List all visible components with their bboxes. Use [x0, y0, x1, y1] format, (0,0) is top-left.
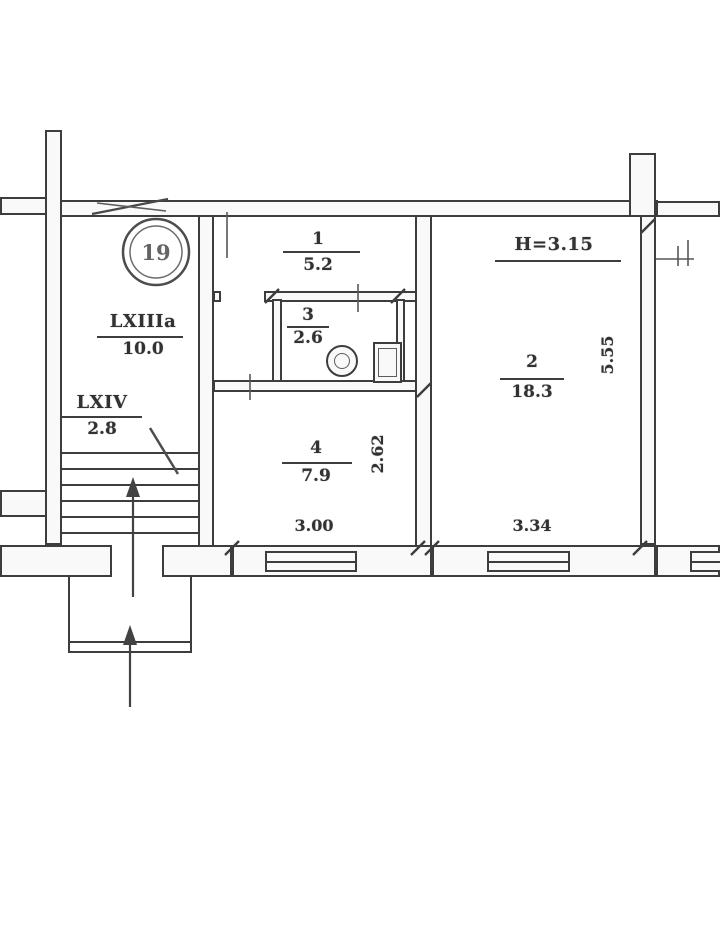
kitchen-number: 4 [280, 438, 352, 458]
height-note-underline [495, 260, 621, 262]
stamp-inner-circle [130, 226, 182, 278]
bathroom-area: 2.6 [284, 329, 332, 347]
stamp-outer-circle [123, 219, 189, 285]
livingroom-area: 18.3 [500, 382, 564, 402]
livingroom-label-bar [500, 378, 564, 380]
hallway-label-bar [283, 251, 360, 253]
hallway-area: 5.2 [288, 255, 348, 275]
wall-hallway-south-b [264, 291, 417, 302]
stair-tread [62, 484, 199, 486]
wall-top-left-stub [0, 197, 47, 215]
wall-top-right-extension [656, 201, 720, 217]
bathroom-number: 3 [284, 306, 332, 324]
dimension-livingroom-depth: 5.55 [597, 325, 619, 385]
sink-basin-icon [378, 348, 397, 377]
livingroom-number: 2 [500, 352, 564, 372]
kitchen-area: 7.9 [280, 466, 352, 486]
wall-left-outer [45, 130, 62, 545]
window-glass-line [692, 561, 720, 563]
window-neighbor-partial [690, 551, 720, 572]
dimension-livingroom-width: 3.34 [490, 515, 574, 537]
wall-stairwell-divider [198, 215, 214, 560]
stairwell-number: LXIIIa [86, 311, 200, 332]
landing-label-bar [62, 416, 142, 418]
stair-arrow-head-icon [126, 477, 140, 497]
floor-plan-canvas: 1 5.2 3 2.6 4 7.9 2 18.3 LXIIIa 10.0 LXI… [0, 0, 720, 940]
floor-plan: 1 5.2 3 2.6 4 7.9 2 18.3 LXIIIa 10.0 LXI… [0, 0, 720, 940]
window-kitchen [265, 551, 357, 572]
wall-top-right-pier [629, 153, 656, 217]
dimension-kitchen-width: 3.00 [272, 515, 356, 537]
wall-hallway-south-a [213, 291, 221, 302]
wall-bottom-b [162, 545, 232, 577]
wall-bathroom-west [272, 299, 282, 389]
dimension-kitchen-depth: 2.62 [368, 424, 388, 484]
stairwell-area: 10.0 [86, 339, 200, 359]
wall-left-lower-stub [0, 490, 47, 517]
window-glass-line [489, 561, 568, 563]
stamp-number: 19 [141, 240, 170, 265]
wall-top-main [60, 200, 658, 217]
wall-livingroom-east [640, 215, 656, 545]
stairwell-label-bar [97, 336, 183, 338]
porch-step-inner [68, 641, 192, 643]
wall-bottom-a [0, 545, 112, 577]
kitchen-label-bar [282, 462, 352, 464]
window-livingroom [487, 551, 570, 572]
stair-tread [62, 516, 199, 518]
landing-number: LXIV [52, 392, 152, 413]
landing-area: 2.8 [52, 419, 152, 439]
stair-tread [62, 500, 199, 502]
hallway-number: 1 [288, 229, 348, 249]
ceiling-height-note: H=3.15 [486, 233, 622, 256]
stair-tread [62, 468, 199, 470]
stair-tread [62, 452, 199, 454]
wall-middle-east [415, 215, 432, 560]
window-glass-line [267, 561, 355, 563]
toilet-bowl-icon [334, 353, 350, 369]
stair-tread [62, 532, 199, 534]
porch-step-outer [68, 651, 192, 653]
plan-annotations: 19 [0, 0, 720, 940]
